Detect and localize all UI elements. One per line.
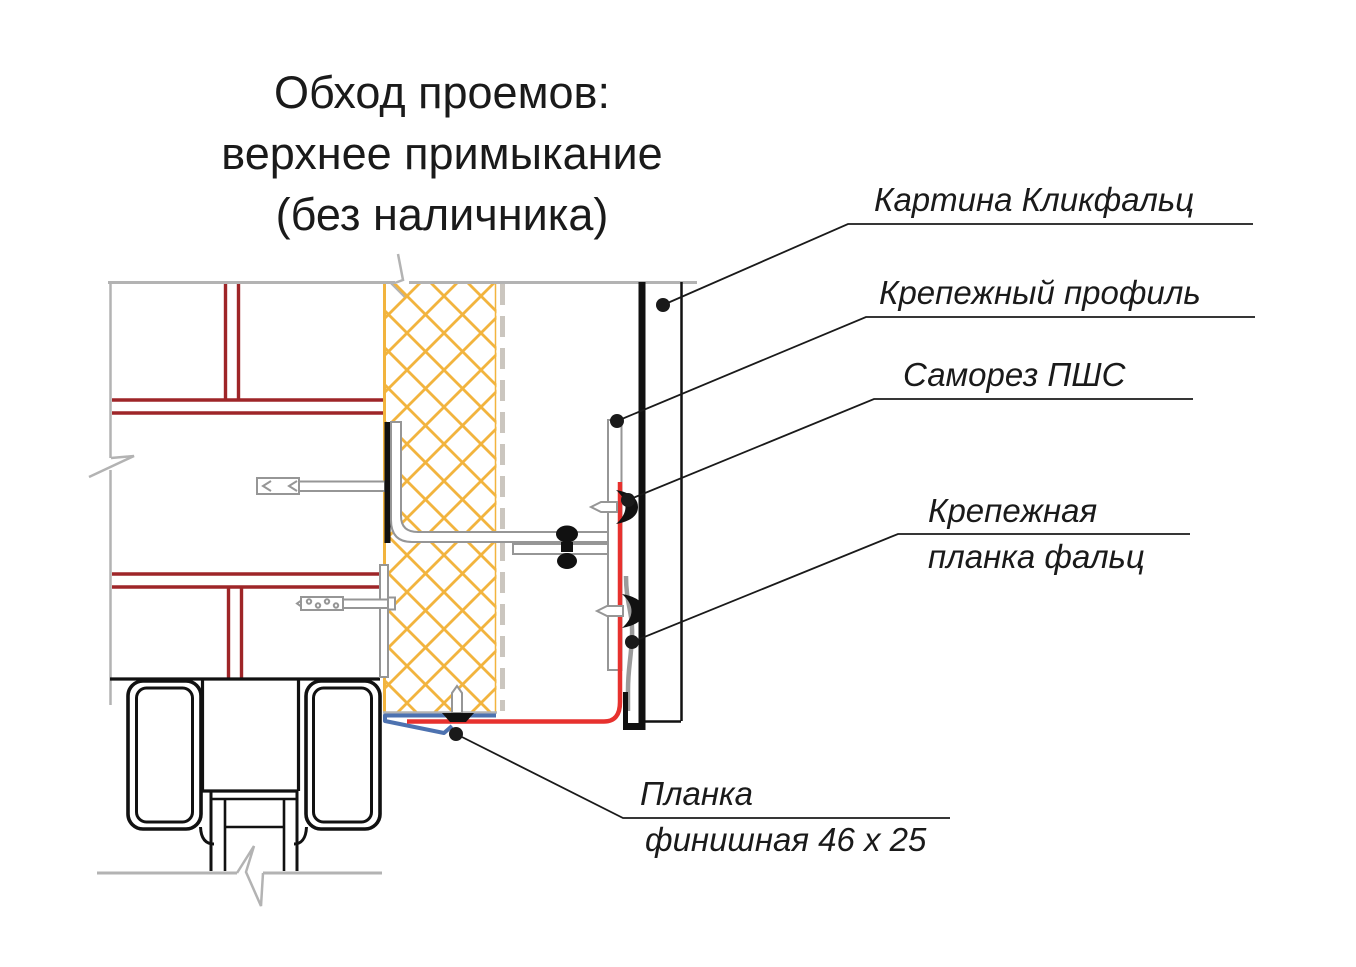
callout-label-falz-strip-line1: Крепежная <box>928 494 1097 528</box>
panel-hem-upstand <box>623 692 628 730</box>
brick-joint-horizontal-1 <box>112 400 383 413</box>
screw-upper-shaft <box>591 502 617 512</box>
leader-dot-klickfalz <box>656 298 670 312</box>
join-rivet-head <box>556 526 578 543</box>
brick-joint-horizontal-2 <box>112 574 383 587</box>
callout-label-falz-strip-line2: планка фальц <box>928 540 1145 574</box>
drawing-title: Обход проемов: верхнее примыкание (без н… <box>152 62 732 245</box>
callout-label-finish-strip-line1: Планка <box>640 777 753 811</box>
finish-strip-blue <box>385 716 496 734</box>
leader-dot-mount-profile <box>610 414 624 428</box>
frame-left-chamber-outer <box>128 681 201 829</box>
callout-leaders <box>449 224 1255 818</box>
brick-joint-vertical-top <box>226 284 239 400</box>
bracket-wall-plate-black <box>385 422 391 543</box>
title-line-2: верхнее примыкание <box>152 123 732 184</box>
bracket-lower-plate <box>380 565 388 677</box>
brick-joint-vertical-bottom <box>229 588 242 678</box>
join-rivet-tip <box>557 553 577 569</box>
panel-back-thin-line <box>645 282 682 722</box>
anchor-dowel-upper <box>257 478 385 494</box>
frame-bottom-break-icon <box>237 846 263 906</box>
title-line-3: (без наличника) <box>152 184 732 245</box>
mount-bracket-lower <box>297 565 395 677</box>
leader-dot-falz-strip <box>625 635 639 649</box>
callout-label-finish-strip-line2: финишная 46 x 25 <box>645 823 926 857</box>
join-rivet-body <box>561 542 573 552</box>
dowel2-shaft <box>343 600 388 609</box>
callout-label-screw-pshs: Саморез ПШС <box>903 358 1126 392</box>
leader-dot-screw <box>621 493 635 507</box>
callout-label-mount-profile: Крепежный профиль <box>879 276 1201 310</box>
window-frame <box>97 679 382 906</box>
callout-label-klickfalz: Картина Кликфальц <box>874 183 1194 217</box>
screw-down-shaft <box>452 686 462 713</box>
frame-right-chamber-outer <box>306 681 380 829</box>
panel-face-thick-line <box>639 282 646 730</box>
screw-lower-shaft <box>597 606 623 616</box>
title-line-1: Обход проемов: <box>152 62 732 123</box>
leader-dot-finish-strip <box>449 727 463 741</box>
dowel2-head <box>388 598 395 610</box>
frame-center-box <box>203 679 299 791</box>
diagram-canvas: Обход проемов: верхнее примыкание (без н… <box>0 0 1356 967</box>
bracket-extension-strip <box>513 544 608 554</box>
frame-mullion-inner <box>225 799 284 871</box>
leader-screw <box>628 399 1193 500</box>
dowel-shaft <box>299 482 385 492</box>
